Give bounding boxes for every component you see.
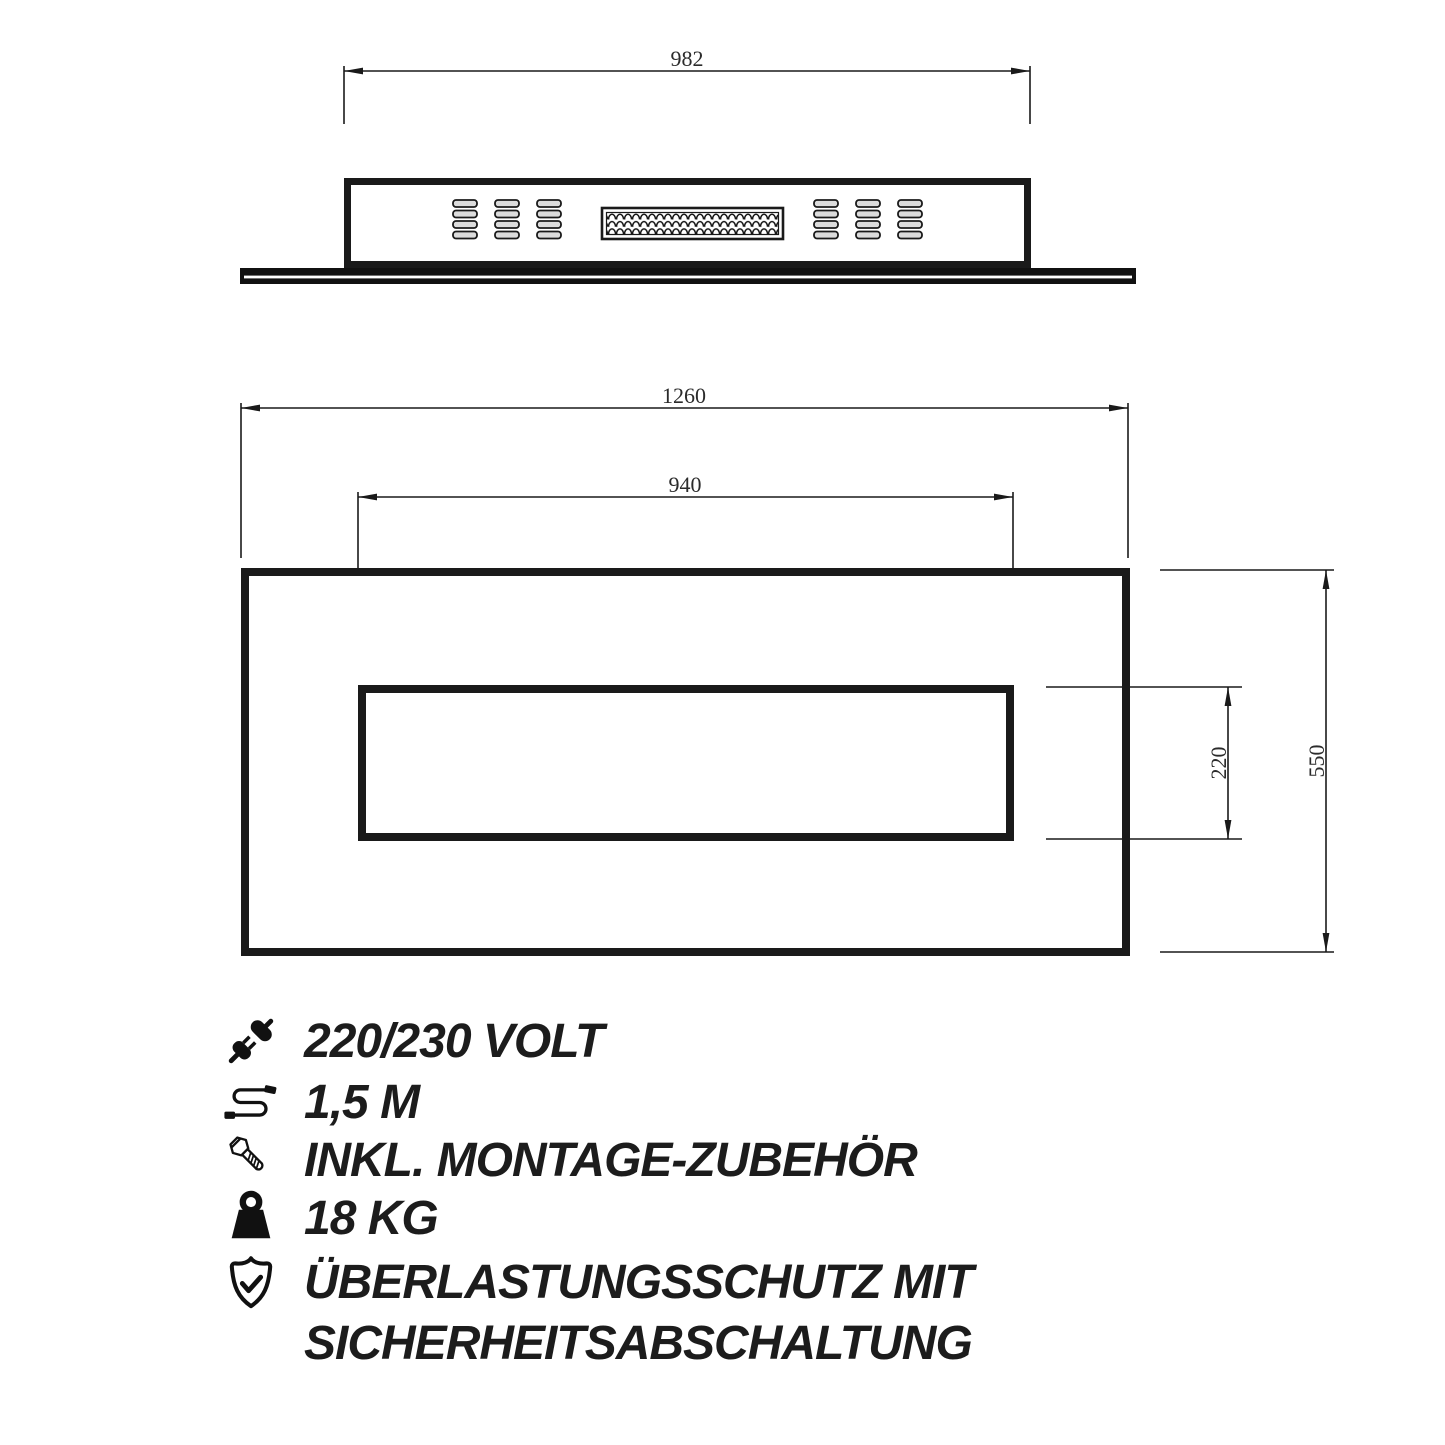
technical-drawing: 982 bbox=[0, 0, 1445, 1445]
spec-item-mounting: INKL. MONTAGE-ZUBEHÖR bbox=[222, 1131, 917, 1189]
spec-label-overload-line2: SICHERHEITSABSCHALTUNG bbox=[304, 1316, 972, 1371]
front-outer-width-dimension: 1260 bbox=[241, 383, 1128, 558]
spec-icon-spacer bbox=[222, 1314, 280, 1372]
arrowhead-left-icon bbox=[241, 405, 260, 412]
dimension-label-1260: 1260 bbox=[662, 383, 706, 408]
outer-height-dimension: 550 bbox=[1160, 570, 1334, 952]
top-view-drawing: 982 bbox=[240, 46, 1136, 284]
spec-item-overload-protection: ÜBERLASTUNGSSCHUTZ MIT bbox=[222, 1253, 973, 1311]
arrowhead-down-icon bbox=[1323, 933, 1330, 952]
arrowhead-right-icon bbox=[1109, 405, 1128, 412]
arrowhead-right-icon bbox=[1011, 68, 1030, 75]
arrowhead-up-icon bbox=[1323, 570, 1330, 589]
dimension-label-982: 982 bbox=[671, 46, 704, 71]
dimension-label-550: 550 bbox=[1304, 745, 1329, 778]
spec-item-cable-length: 1,5 M bbox=[222, 1073, 419, 1131]
spec-item-weight: 18 KG bbox=[222, 1189, 438, 1247]
power-plug-icon bbox=[222, 1012, 280, 1070]
spec-item-voltage: 220/230 VOLT bbox=[222, 1012, 603, 1070]
arrowhead-up-icon bbox=[1225, 687, 1232, 706]
arrowhead-left-icon bbox=[344, 68, 363, 75]
front-view-drawing: 1260 940 220 bbox=[241, 383, 1334, 952]
dimension-diagram-page: 982 bbox=[0, 0, 1445, 1445]
spec-label-voltage: 220/230 VOLT bbox=[304, 1014, 603, 1069]
front-inner-opening bbox=[362, 689, 1010, 837]
spec-label-overload-line1: ÜBERLASTUNGSSCHUTZ MIT bbox=[304, 1255, 973, 1310]
shield-check-icon bbox=[222, 1253, 280, 1311]
spec-item-overload-protection-line2: SICHERHEITSABSCHALTUNG bbox=[222, 1314, 972, 1372]
spec-label-weight: 18 KG bbox=[304, 1191, 438, 1246]
mounting-plate bbox=[240, 268, 1136, 284]
weight-icon bbox=[222, 1189, 280, 1247]
arrowhead-down-icon bbox=[1225, 820, 1232, 839]
center-grille bbox=[602, 208, 783, 239]
arrowhead-left-icon bbox=[358, 494, 377, 501]
top-view-width-dimension: 982 bbox=[344, 46, 1030, 124]
dimension-label-940: 940 bbox=[669, 472, 702, 497]
spec-label-cable-length: 1,5 M bbox=[304, 1075, 419, 1130]
cable-icon bbox=[222, 1073, 280, 1131]
spec-label-mounting: INKL. MONTAGE-ZUBEHÖR bbox=[304, 1133, 917, 1188]
arrowhead-right-icon bbox=[994, 494, 1013, 501]
dimension-label-220: 220 bbox=[1206, 747, 1231, 780]
screw-icon bbox=[222, 1131, 280, 1189]
